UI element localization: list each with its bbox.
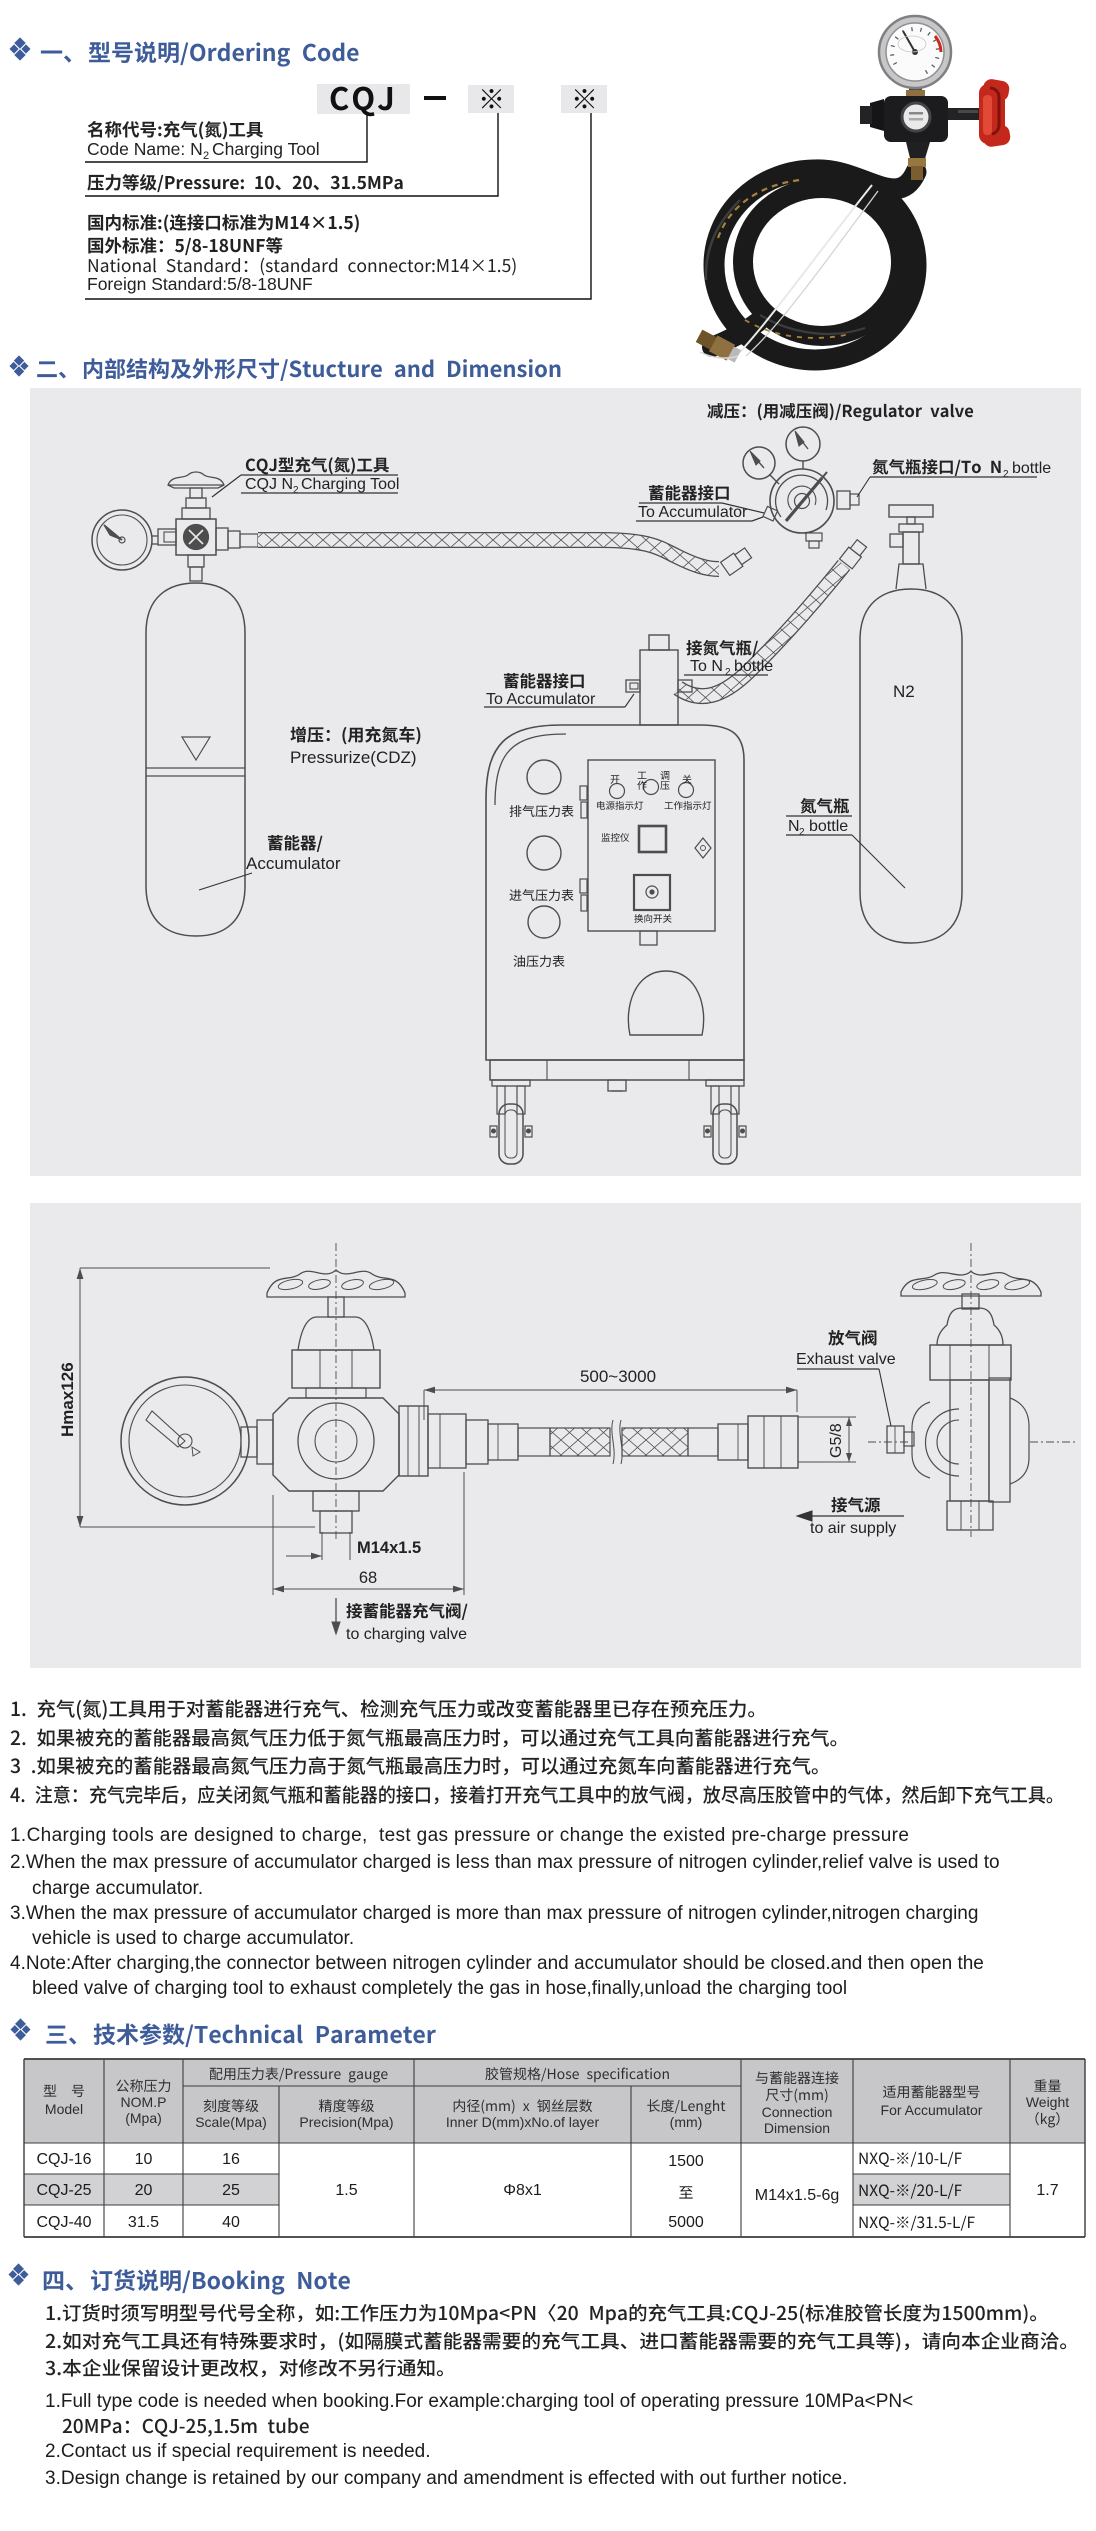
svg-text:2: 2 [799,827,805,838]
svg-text:CQJ-40: CQJ-40 [36,2214,91,2231]
svg-text:N: N [788,818,800,835]
svg-text:(Mpa): (Mpa) [125,2110,162,2126]
svg-text:(mm): (mm) [670,2114,703,2130]
svg-text:Dimension: Dimension [764,2120,830,2136]
svg-text:Exhaust valve: Exhaust valve [796,1351,896,1368]
svg-text:G5/8: G5/8 [828,1423,845,1458]
svg-text:2: 2 [203,150,209,162]
svg-text:2: 2 [725,667,731,678]
svg-text:to air supply: to air supply [810,1520,896,1537]
svg-text:2: 2 [1003,469,1009,480]
svg-text:Charging Tool: Charging Tool [301,476,399,493]
svg-text:10: 10 [135,2151,153,2168]
svg-text:1.5: 1.5 [335,2182,357,2199]
svg-text:To Accumulator: To Accumulator [638,504,748,521]
svg-text:Hmax126: Hmax126 [58,1362,77,1437]
svg-text:1500: 1500 [668,2153,704,2170]
svg-text:To N: To N [690,658,723,675]
svg-text:Pressurize(CDZ): Pressurize(CDZ) [290,748,417,767]
svg-text:500~3000: 500~3000 [580,1367,656,1386]
svg-text:N2: N2 [893,682,915,701]
svg-text:bottle: bottle [809,818,848,835]
svg-text:bottle: bottle [1012,460,1051,477]
svg-text:68: 68 [359,1569,377,1587]
svg-text:Code Name: N: Code Name: N [87,139,203,159]
svg-text:Connection: Connection [762,2104,833,2120]
svg-text:Scale(Mpa): Scale(Mpa) [195,2114,267,2130]
svg-text:NOM.P: NOM.P [121,2094,167,2110]
svg-text:M14x1.5-6g: M14x1.5-6g [755,2187,840,2204]
svg-text:2: 2 [293,485,299,496]
svg-text:M14x1.5: M14x1.5 [357,1539,421,1557]
svg-text:CQJ-16: CQJ-16 [36,2151,91,2168]
svg-text:CQJ N: CQJ N [245,476,293,493]
svg-text:Charging Tool: Charging Tool [212,139,320,159]
svg-text:Foreign Standard:5/8-18UNF: Foreign Standard:5/8-18UNF [87,274,313,294]
svg-text:to charging valve: to charging valve [346,1626,467,1643]
svg-text:CQJ-25: CQJ-25 [36,2182,91,2199]
svg-text:bottle: bottle [734,658,773,675]
svg-text:16: 16 [222,2151,240,2168]
svg-text:To Accumulator: To Accumulator [486,691,596,708]
svg-text:25: 25 [222,2182,240,2199]
svg-text:For Accumulator: For Accumulator [881,2102,983,2118]
svg-text:1.7: 1.7 [1036,2182,1058,2199]
svg-text:Model: Model [45,2101,83,2117]
svg-text:5000: 5000 [668,2214,704,2231]
svg-text:Precision(Mpa): Precision(Mpa) [299,2114,393,2130]
svg-text:20: 20 [135,2182,153,2199]
svg-text:Accumulator: Accumulator [246,854,341,873]
svg-text:Weight: Weight [1026,2094,1069,2110]
svg-text:Inner D(mm)xNo.of layer: Inner D(mm)xNo.of layer [446,2114,600,2130]
svg-text:40: 40 [222,2214,240,2231]
svg-text:31.5: 31.5 [128,2214,159,2231]
svg-text:Φ8x1: Φ8x1 [503,2182,542,2199]
